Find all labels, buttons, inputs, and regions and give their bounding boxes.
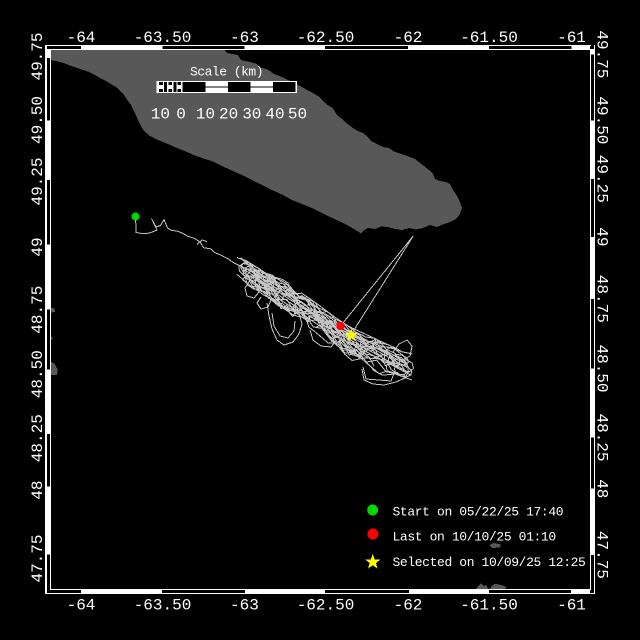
svg-text:0: 0 <box>176 106 186 124</box>
svg-text:-63: -63 <box>230 29 259 47</box>
svg-text:Scale (km): Scale (km) <box>190 65 263 80</box>
svg-text:49.50: 49.50 <box>593 96 611 144</box>
svg-text:10: 10 <box>151 106 170 124</box>
svg-text:-63: -63 <box>230 596 259 614</box>
svg-text:48: 48 <box>29 480 47 499</box>
svg-text:-64: -64 <box>67 29 96 47</box>
svg-text:-61.50: -61.50 <box>460 29 518 47</box>
svg-text:47.75: 47.75 <box>593 531 611 579</box>
svg-text:48.50: 48.50 <box>593 344 611 392</box>
svg-text:48: 48 <box>593 479 611 498</box>
svg-text:49.75: 49.75 <box>593 30 611 78</box>
svg-text:50: 50 <box>288 106 307 124</box>
svg-text:-62: -62 <box>394 596 423 614</box>
svg-text:49.25: 49.25 <box>29 157 47 205</box>
svg-text:20: 20 <box>219 106 238 124</box>
svg-text:48.75: 48.75 <box>29 286 47 334</box>
svg-text:49: 49 <box>593 227 611 246</box>
svg-text:-62.50: -62.50 <box>297 596 355 614</box>
svg-text:49.25: 49.25 <box>593 155 611 203</box>
svg-text:48.75: 48.75 <box>593 275 611 323</box>
svg-text:Start on 05/22/25 17:40: Start on 05/22/25 17:40 <box>393 505 564 520</box>
svg-text:-62: -62 <box>394 29 423 47</box>
svg-text:48.25: 48.25 <box>593 413 611 461</box>
svg-text:-61: -61 <box>557 596 586 614</box>
svg-text:49.50: 49.50 <box>29 96 47 144</box>
svg-text:30: 30 <box>242 106 261 124</box>
svg-text:-63.50: -63.50 <box>134 596 192 614</box>
svg-text:40: 40 <box>265 106 284 124</box>
svg-text:-63.50: -63.50 <box>134 29 192 47</box>
svg-text:Last on 10/10/25 01:10: Last on 10/10/25 01:10 <box>393 530 556 545</box>
svg-text:10: 10 <box>196 106 215 124</box>
svg-text:49.75: 49.75 <box>29 32 47 80</box>
svg-text:Selected on 10/09/25 12:25: Selected on 10/09/25 12:25 <box>393 555 586 570</box>
svg-text:-61: -61 <box>557 29 586 47</box>
svg-text:49: 49 <box>29 237 47 256</box>
svg-text:-62.50: -62.50 <box>297 29 355 47</box>
svg-text:-64: -64 <box>67 596 96 614</box>
svg-text:47.75: 47.75 <box>29 534 47 582</box>
svg-text:48.50: 48.50 <box>29 350 47 398</box>
svg-text:-61.50: -61.50 <box>460 596 518 614</box>
svg-text:48.25: 48.25 <box>29 414 47 462</box>
